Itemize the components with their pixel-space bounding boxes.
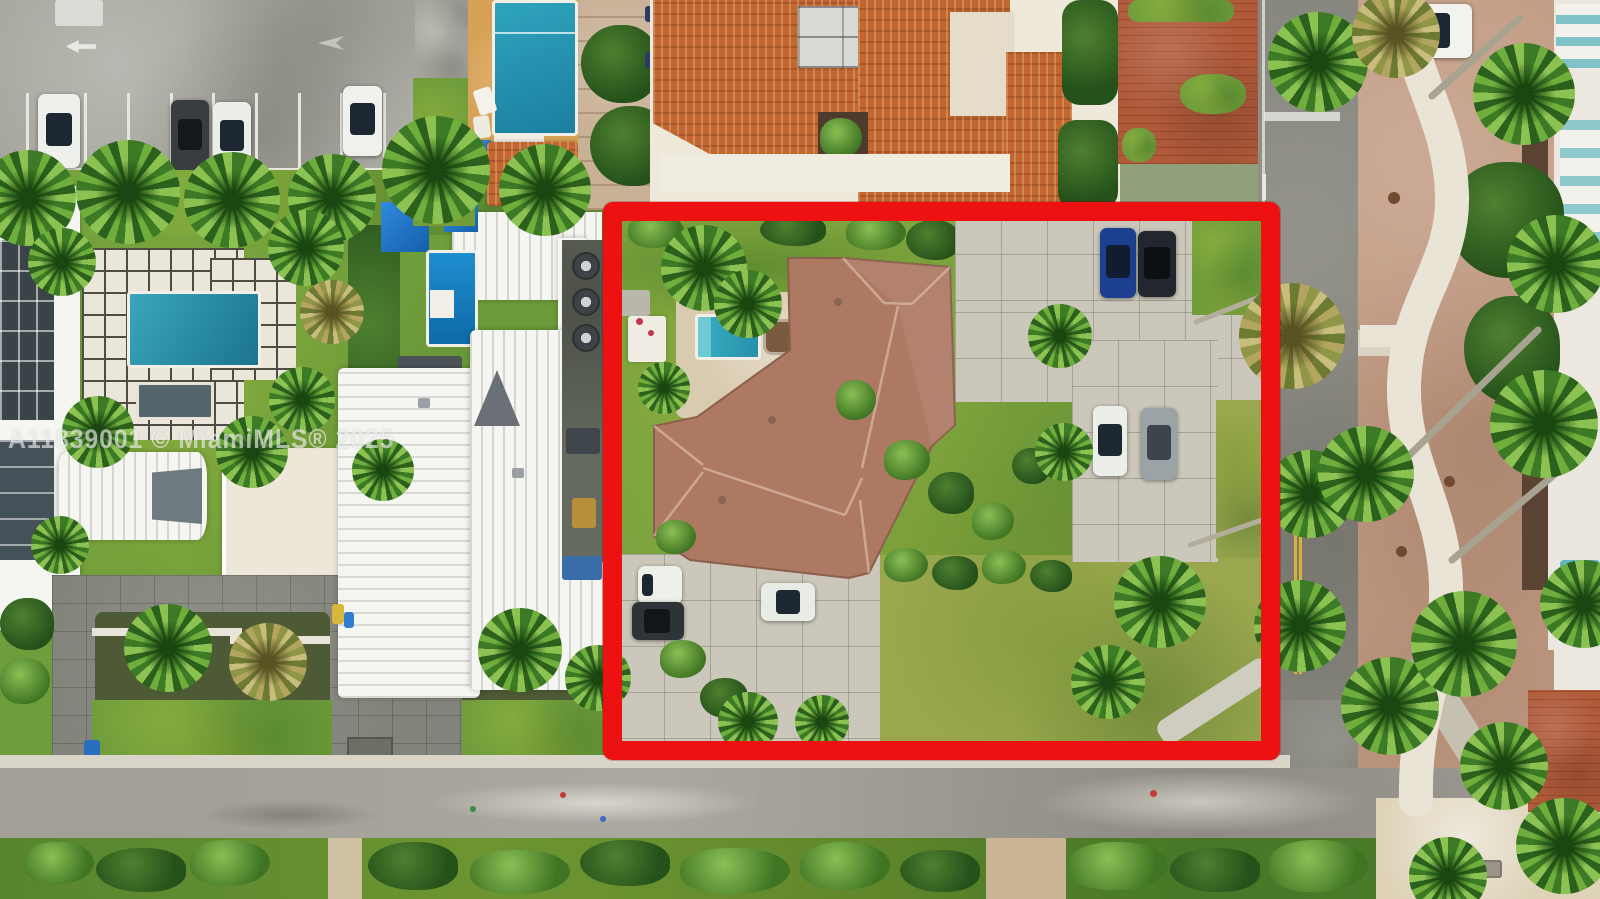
hedge [1062,0,1118,105]
stop-bar [1264,112,1340,121]
palm-tree [268,210,344,286]
palm-tree [184,152,280,248]
pool-lane-line [495,32,575,34]
paint-mark [600,816,606,822]
palm-tree [382,116,490,224]
equipment-box [566,428,600,454]
hedge-bush [0,598,54,650]
sidewalk-bulb [1358,330,1408,356]
palm-tree [76,140,180,244]
hedge-bush [96,848,186,892]
grass-patch [1128,0,1234,22]
white-wall-band [660,154,1010,192]
palm-tree [478,608,562,692]
road-stain [200,800,380,830]
hedge-bush [1170,848,1260,892]
palm-tree [229,623,307,701]
tree-pit [1444,476,1455,487]
roof-vent [418,398,430,408]
tree-pit [1396,546,1407,557]
paint-mark [470,806,476,812]
palm-tree [1411,591,1517,697]
teal-windows [1556,4,1600,68]
palm-tree [1490,370,1598,478]
palm-tree [1318,426,1414,522]
palm-tree [124,604,212,692]
main-white-roof [338,368,480,698]
parking-stripe [298,93,301,171]
paint-mark [1150,790,1157,797]
palm-tree [499,144,591,236]
lawn-island [92,700,332,762]
palm-tree [1460,722,1548,810]
palm-tree [300,280,364,344]
rooftop-structure [55,0,103,26]
mls-watermark: A11839001 © MiamiMLS® 2025 [8,424,394,455]
paint-mark [560,792,566,798]
pool-deck-notch [430,290,454,318]
aerial-photo: A11839001 © MiamiMLS® 2025 [0,0,1600,899]
spa [136,382,214,420]
ac-unit [572,288,600,316]
dark-walkway [1522,470,1548,590]
swimming-pool [127,291,261,368]
skylight [152,468,202,524]
tree-pit [1388,192,1400,204]
pool-toy [344,612,354,628]
paver-path [986,838,1066,899]
pool-toy [332,604,344,624]
paver-path [328,838,362,899]
blue-tarp [562,556,602,580]
palm-tree [1507,215,1600,313]
white-suv [343,86,382,156]
road-patch [430,782,760,824]
grass-patch [1180,74,1246,114]
ac-unit [572,324,600,352]
hedge [1058,120,1118,210]
large-pool [492,0,578,136]
grass-patch [1122,128,1156,162]
property-outline [603,202,1280,760]
hedge-bush [580,840,670,886]
palm-tree [28,228,96,296]
palm-tree [1473,43,1575,145]
crate [572,498,596,528]
hedge-bush [900,850,980,892]
worn-crosswalk [1040,772,1360,832]
roof-vent [512,468,524,478]
hedge-bush [368,842,458,890]
ac-unit [572,252,600,280]
palm-tree [31,516,89,574]
stucco-wall [950,12,1012,116]
